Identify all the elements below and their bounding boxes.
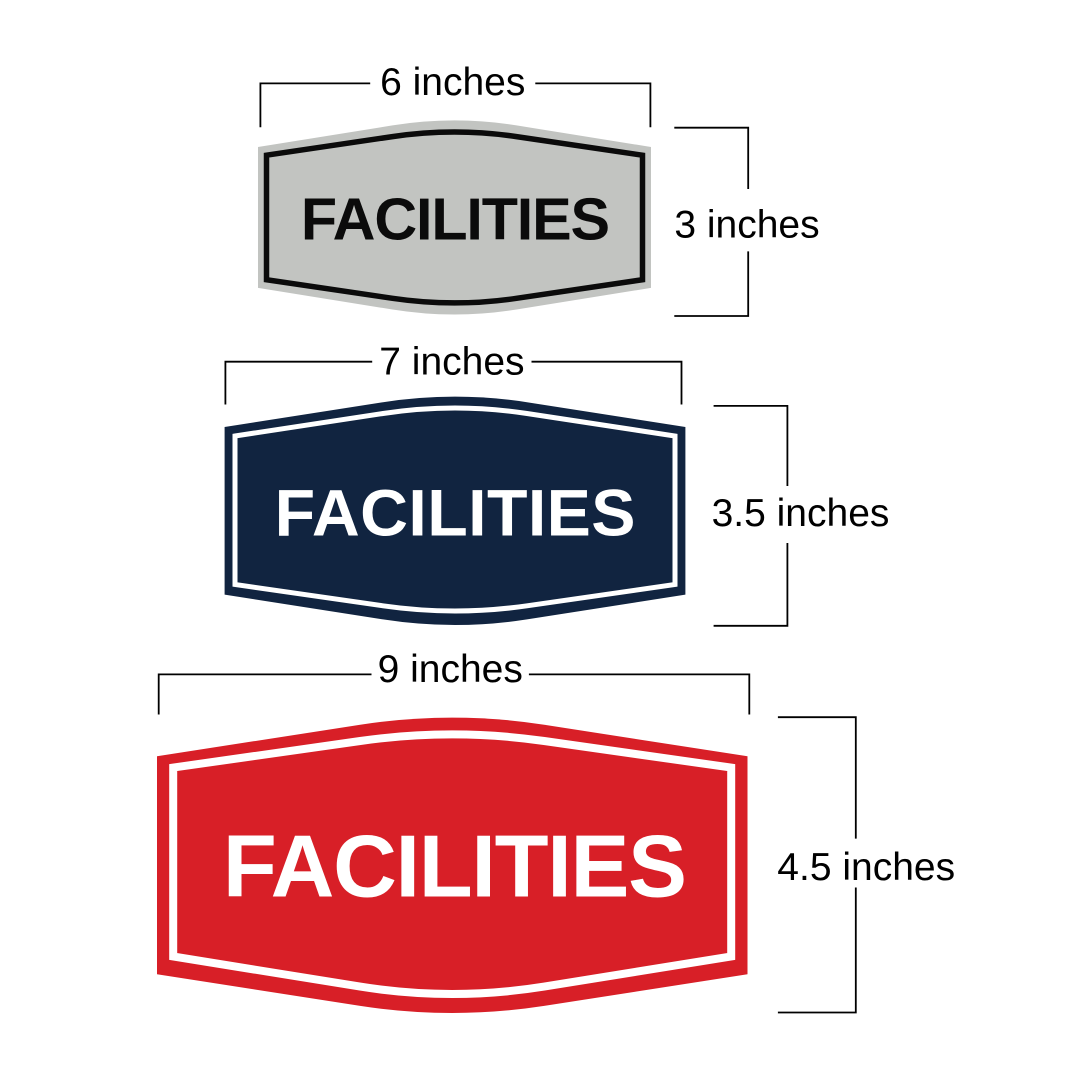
svg-text:3 inches: 3 inches (674, 204, 819, 247)
svg-text:FACILITIES: FACILITIES (275, 477, 636, 551)
svg-text:3.5 inches: 3.5 inches (712, 492, 890, 535)
svg-text:7 inches: 7 inches (379, 341, 524, 384)
svg-text:4.5 inches: 4.5 inches (777, 846, 955, 889)
svg-text:9 inches: 9 inches (378, 648, 523, 691)
svg-text:6 inches: 6 inches (380, 61, 525, 104)
svg-text:FACILITIES: FACILITIES (223, 817, 686, 916)
svg-text:FACILITIES: FACILITIES (301, 186, 609, 253)
